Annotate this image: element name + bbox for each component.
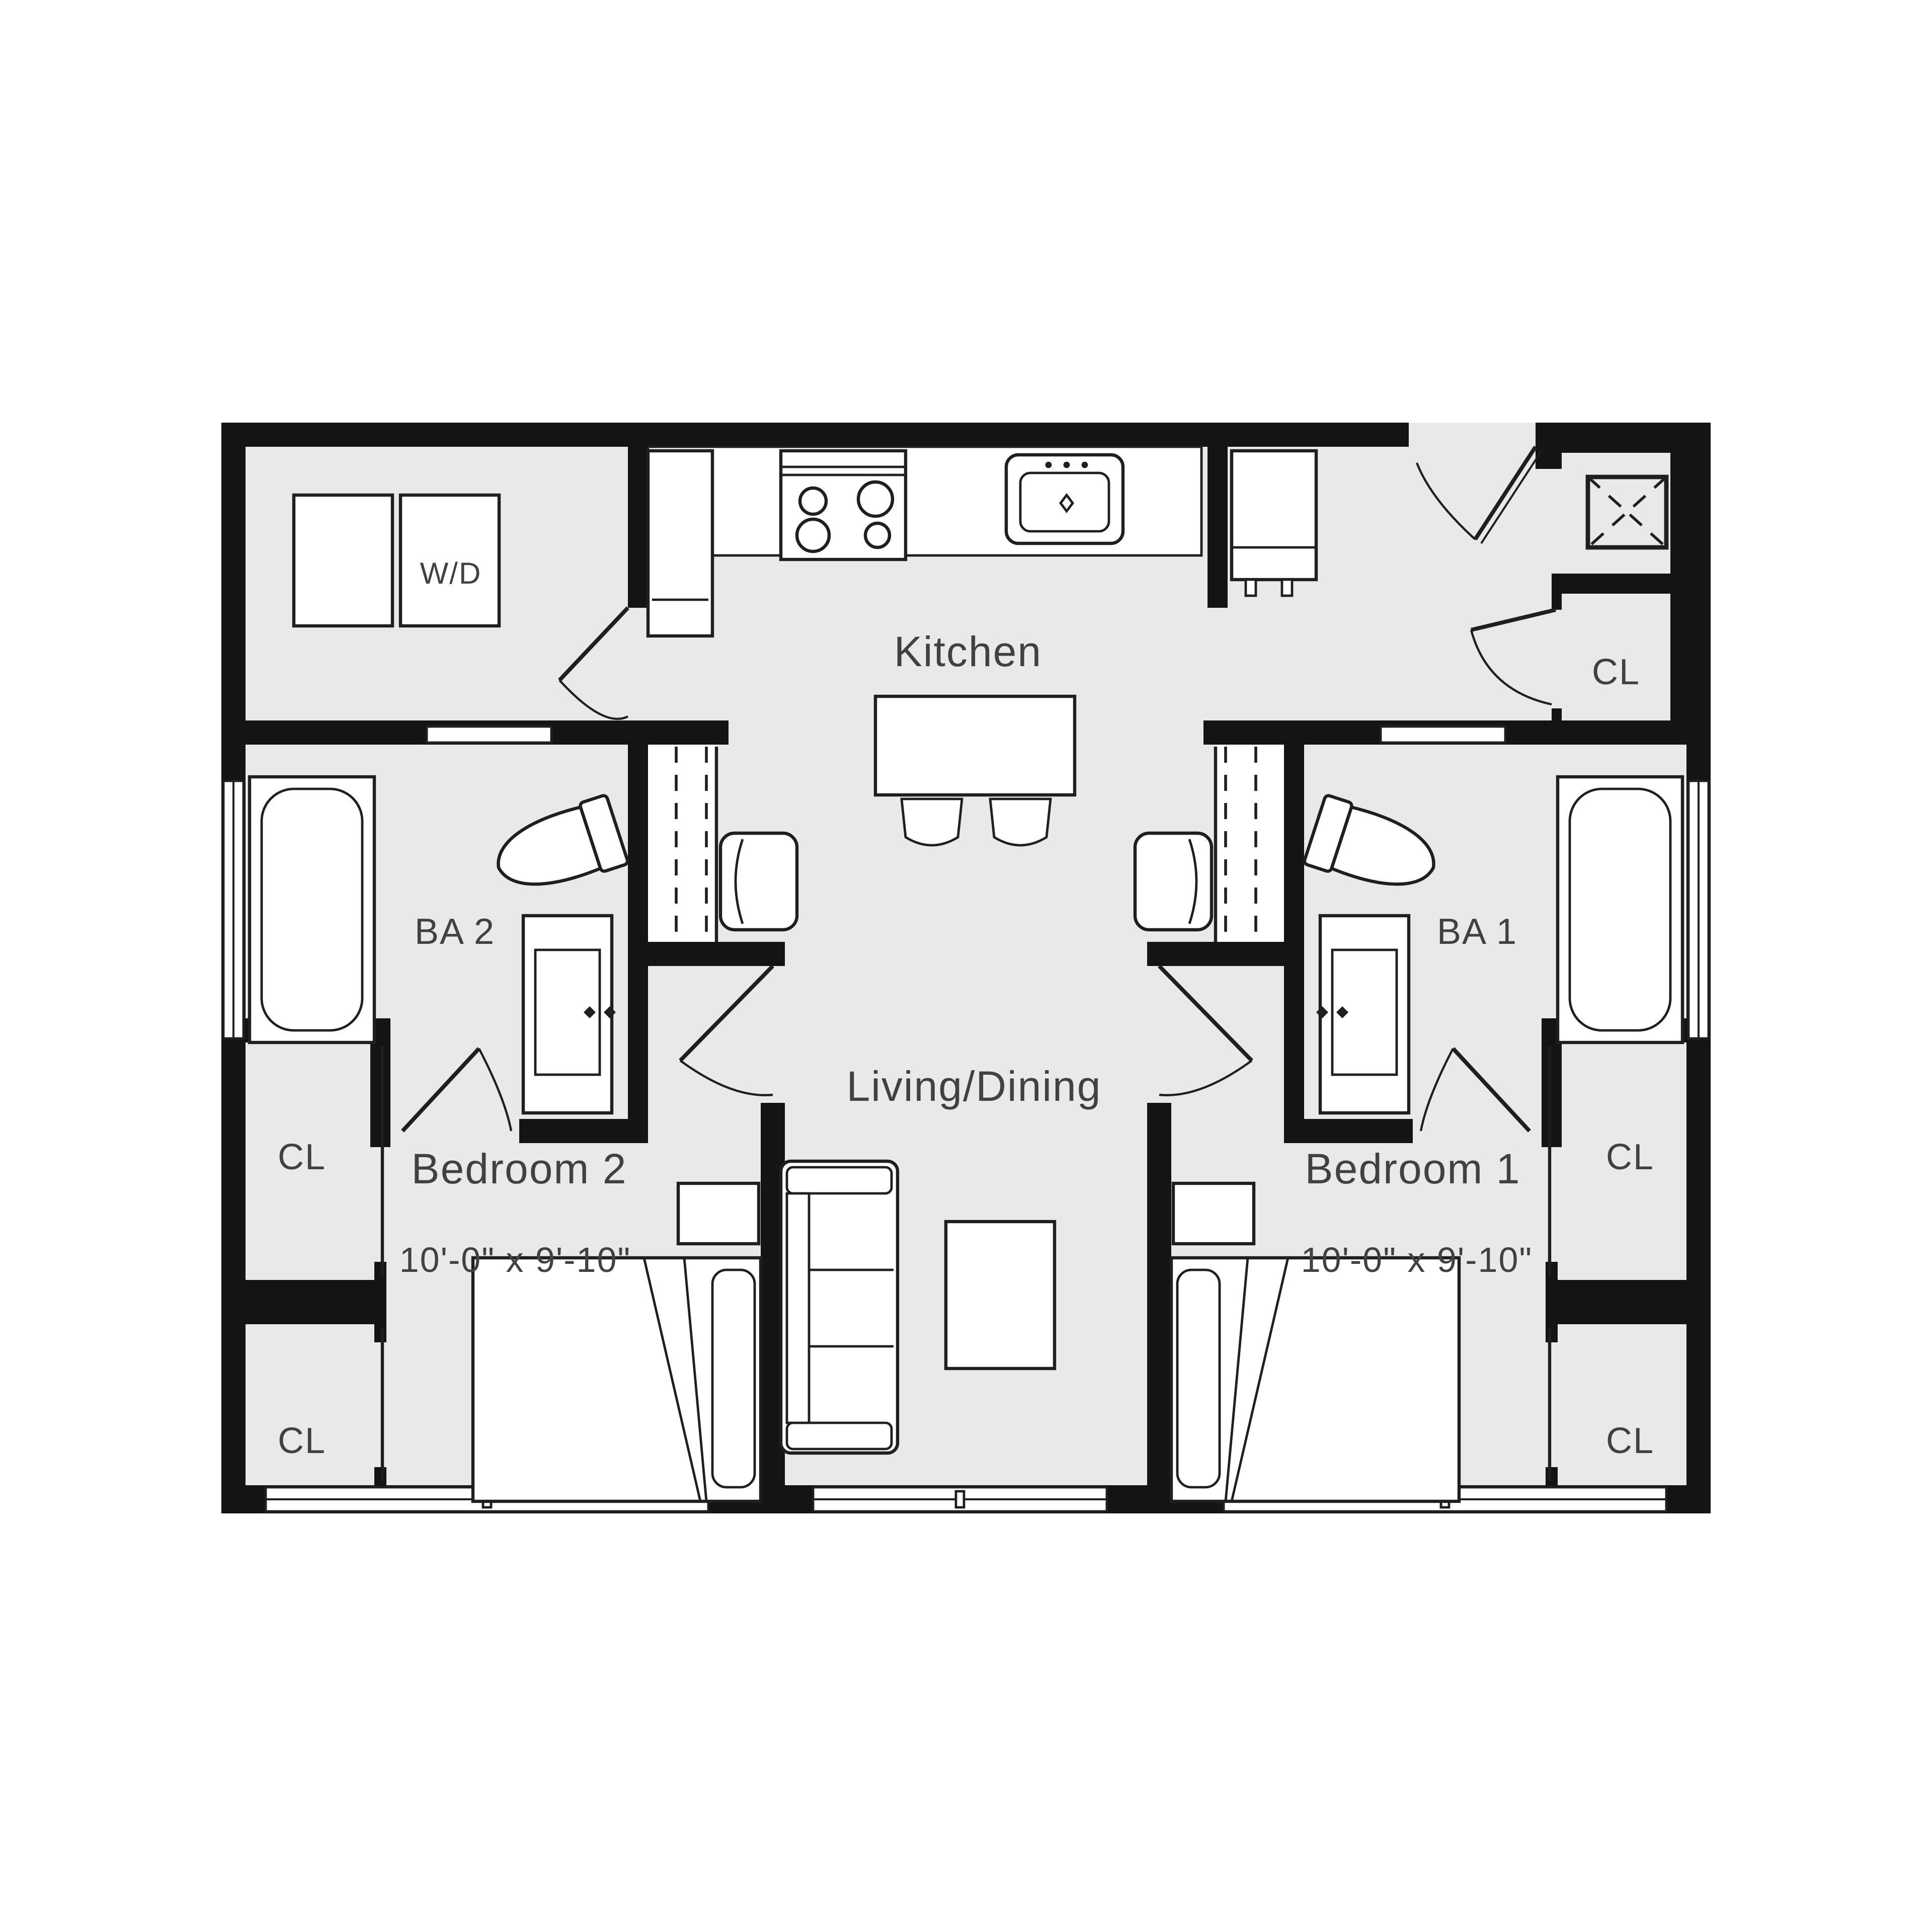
pillow xyxy=(1177,1270,1220,1487)
wall-top xyxy=(221,423,1409,447)
range xyxy=(781,451,906,559)
sofa-arm xyxy=(787,1167,892,1193)
jamb xyxy=(1546,1467,1558,1485)
vanity-2 xyxy=(523,916,616,1113)
bed-1 xyxy=(1171,1258,1459,1501)
sofa-arm xyxy=(787,1423,892,1449)
closet-left-lower-label: CL xyxy=(278,1421,326,1461)
wall-closet2-bottom xyxy=(628,942,785,966)
jamb xyxy=(374,1324,386,1342)
wall-shaft-bottom xyxy=(1552,574,1711,594)
sofa-back xyxy=(787,1193,809,1423)
jamb xyxy=(1546,1324,1558,1342)
wall-cl-divider-right xyxy=(1546,1280,1686,1324)
entry-jamb-stub xyxy=(1536,447,1562,469)
wall-right-thick xyxy=(1670,423,1711,720)
entry-closet-label: CL xyxy=(1592,652,1640,692)
armchair-right xyxy=(1135,833,1212,930)
pillow xyxy=(712,1270,755,1487)
bar-stool xyxy=(902,799,962,845)
sliding-closet-right xyxy=(1216,745,1284,942)
bar-stool xyxy=(990,799,1051,845)
floor-plan: Kitchen Living/Dining Bedroom 2 10'-0" x… xyxy=(0,0,1932,1932)
coffee-table xyxy=(946,1222,1055,1369)
bathtub-1 xyxy=(1558,777,1682,1042)
living-dining-label: Living/Dining xyxy=(847,1063,1102,1110)
bedroom2-label: Bedroom 2 xyxy=(412,1145,627,1192)
wall-closet1-bottom xyxy=(1147,942,1304,966)
bed-2 xyxy=(473,1258,761,1501)
wall-bath1-bottom xyxy=(1284,1119,1413,1143)
closet-right-lower-label: CL xyxy=(1606,1421,1654,1461)
wall-niche-right xyxy=(1381,727,1505,743)
bedroom1-label: Bedroom 1 xyxy=(1305,1145,1521,1192)
kitchen-label: Kitchen xyxy=(894,628,1042,675)
bathtub-2 xyxy=(250,777,374,1042)
jamb xyxy=(374,1042,386,1061)
bedroom2-dims: 10'-0" x 9'-10" xyxy=(399,1240,631,1279)
jamb xyxy=(374,1262,386,1280)
jamb xyxy=(374,1467,386,1485)
closet-left-upper-label: CL xyxy=(278,1137,326,1177)
washer-dryer-label: W/D xyxy=(420,556,482,590)
nightstand-1 xyxy=(1173,1183,1254,1244)
bedroom1-dims: 10'-0" x 9'-10" xyxy=(1301,1240,1533,1279)
closet-right-upper-label: CL xyxy=(1606,1137,1654,1177)
vanity-1 xyxy=(1316,916,1409,1113)
cl-entry-jamb-top xyxy=(1552,594,1562,610)
wall-cl-divider-left xyxy=(246,1280,386,1324)
wall-niche-left xyxy=(427,727,551,743)
window-bath2 xyxy=(223,781,244,1038)
tall-cabinet xyxy=(648,451,712,636)
armchair-left xyxy=(720,833,797,930)
kitchen-sink xyxy=(1006,455,1123,543)
sofa xyxy=(781,1161,898,1453)
wall-laundry-kitchen xyxy=(628,447,648,608)
sliding-closet-left xyxy=(648,745,716,942)
cl-entry-jamb-bottom xyxy=(1552,708,1562,720)
window-living xyxy=(813,1487,1107,1511)
wall-bath1-left xyxy=(1284,720,1304,1143)
jamb xyxy=(1546,1042,1558,1061)
wall-living-bed1 xyxy=(1147,1103,1171,1485)
bath2-label: BA 2 xyxy=(415,912,495,952)
wall-bath2-bottom xyxy=(519,1119,648,1143)
bath1-label: BA 1 xyxy=(1437,912,1517,952)
nightstand-2 xyxy=(678,1183,759,1244)
shaft-hatch xyxy=(1588,477,1666,547)
wall-kitchen-entry xyxy=(1207,447,1228,608)
wall-bath2-right xyxy=(628,720,648,1143)
jamb xyxy=(1546,1262,1558,1280)
washer xyxy=(294,495,392,626)
window-bath1 xyxy=(1688,781,1709,1038)
refrigerator xyxy=(1232,451,1316,596)
